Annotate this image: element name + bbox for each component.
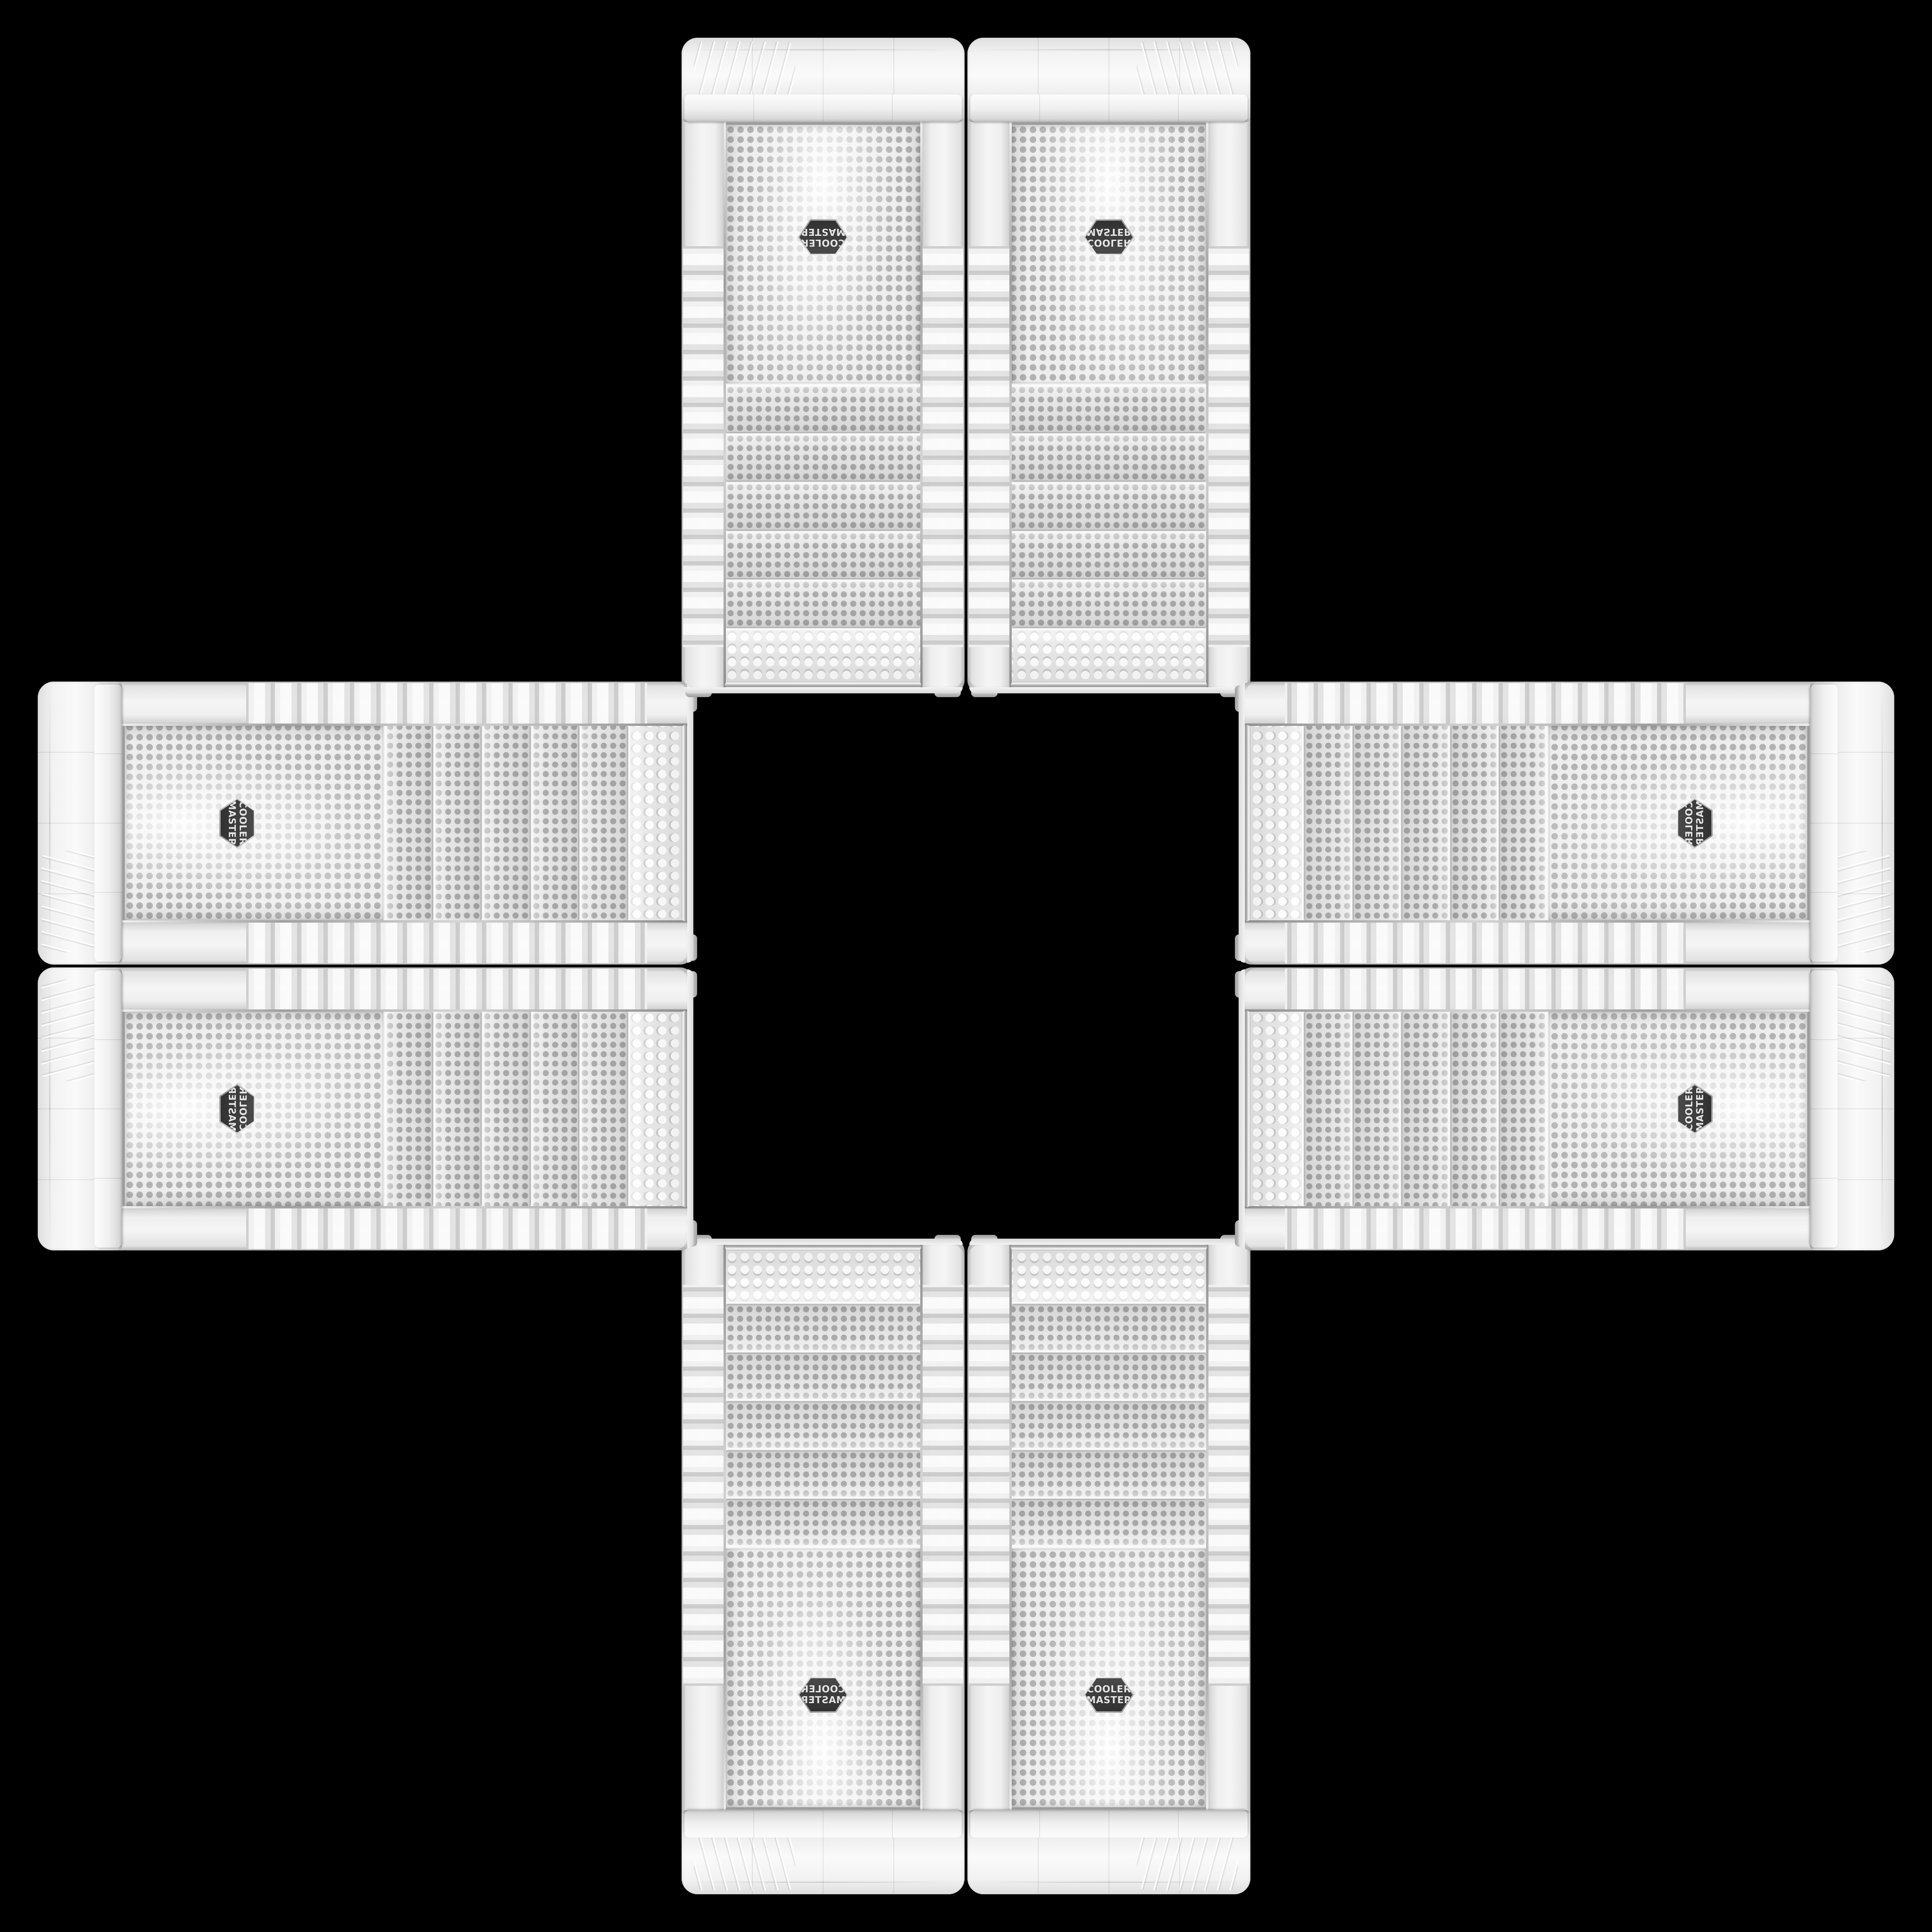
cooler-master-badge: COOLER MASTER xyxy=(798,1677,848,1713)
side-rail-ribs xyxy=(1285,683,1686,724)
cap-front-ledge xyxy=(684,94,962,122)
side-rail-chrome-edge xyxy=(724,1244,726,1823)
side-rail-ribs xyxy=(969,246,1010,647)
side-rail-chrome-edge xyxy=(1244,920,1823,923)
side-rail-right xyxy=(1244,682,1823,726)
badge-text-line2: MASTER xyxy=(1695,800,1706,846)
drive-bay-cover xyxy=(726,434,920,481)
case-top-right: COOLER MASTER xyxy=(967,38,1250,693)
case-left-bottom: COOLER MASTER xyxy=(38,967,693,1250)
base-bar xyxy=(1239,683,1245,963)
cooler-master-badge: COOLER MASTER xyxy=(798,219,848,255)
side-rail-right xyxy=(109,682,688,726)
top-bezel-cap xyxy=(682,1810,965,1894)
drive-bay-cover xyxy=(1012,483,1206,529)
drive-bay-cover xyxy=(1402,1012,1449,1206)
cap-front-ledge xyxy=(970,94,1248,122)
drive-bay-cover xyxy=(1012,532,1206,578)
side-rail-ribs xyxy=(922,246,963,647)
cooler-master-badge: COOLER MASTER xyxy=(219,1084,255,1134)
drive-bay-cover xyxy=(1012,434,1206,481)
side-rail-right xyxy=(1244,1206,1823,1250)
badge-text-line1: COOLER xyxy=(1087,1684,1131,1695)
drive-bay-cover xyxy=(385,1012,432,1206)
drive-bay-cover xyxy=(1012,580,1206,627)
side-rail-left xyxy=(682,1244,726,1823)
drive-bay-cover xyxy=(726,1451,920,1498)
side-rail-chrome-edge xyxy=(109,724,688,726)
badge-text-line2: MASTER xyxy=(1086,226,1132,237)
cap-front-ledge xyxy=(94,684,122,962)
drive-bay-cover xyxy=(1012,385,1206,432)
badge-text-line1: COOLER xyxy=(237,1087,248,1131)
cooler-master-badge: COOLER MASTER xyxy=(1677,1084,1713,1134)
side-rail-ribs xyxy=(922,1285,963,1686)
case-left-top: COOLER MASTER xyxy=(38,682,693,965)
cap-front-ledge xyxy=(1810,970,1838,1248)
base-bar xyxy=(687,969,693,1249)
top-bezel-cap xyxy=(967,38,1250,122)
drive-bay-cover xyxy=(434,726,481,920)
side-rail-right xyxy=(967,109,1012,688)
side-rail-chrome-edge xyxy=(1244,724,1823,726)
drive-bay-grid xyxy=(385,726,627,920)
cap-front-ledge xyxy=(684,1810,962,1838)
drive-bay-cover xyxy=(726,580,920,627)
drive-bay-cover xyxy=(532,726,578,920)
case-right-top: COOLER MASTER xyxy=(1239,682,1894,965)
side-rail-chrome-edge xyxy=(1244,1009,1823,1012)
top-bezel-cap xyxy=(682,38,965,122)
drive-bay-cover xyxy=(580,1012,627,1206)
badge-text-line2: MASTER xyxy=(1086,1695,1132,1706)
drive-bay-cover xyxy=(726,385,920,432)
chrome-trim-bottom xyxy=(725,683,921,687)
drive-bay-cover xyxy=(1305,1012,1352,1206)
drive-bay-cover xyxy=(385,726,432,920)
bottom-intake-mesh xyxy=(1250,726,1303,920)
cap-ledge-seams xyxy=(94,970,122,1248)
badge-text-line1: COOLER xyxy=(801,1684,845,1695)
side-rail-ribs xyxy=(1285,922,1686,963)
chrome-trim-bottom xyxy=(683,725,687,921)
case-top-left: COOLER MASTER xyxy=(682,38,965,693)
side-rail-chrome-edge xyxy=(1244,1206,1823,1208)
side-rail-left xyxy=(682,109,726,688)
bottom-intake-mesh xyxy=(629,1012,682,1206)
drive-bay-cover xyxy=(532,1012,578,1206)
drive-bay-cover xyxy=(580,726,627,920)
chrome-trim-bottom xyxy=(725,1245,921,1249)
pc-case: COOLER MASTER xyxy=(967,1239,1250,1894)
case-bottom-right: COOLER MASTER xyxy=(967,1239,1250,1894)
side-rail-ribs xyxy=(1207,1285,1249,1686)
top-bezel-cap xyxy=(1810,682,1894,965)
drive-bay-cover xyxy=(726,1305,920,1352)
pc-case: COOLER MASTER xyxy=(1239,682,1894,965)
side-rail-chrome-edge xyxy=(109,1206,688,1208)
cap-ledge-seams xyxy=(1810,970,1838,1248)
pc-case: COOLER MASTER xyxy=(38,682,693,965)
badge-text-line1: COOLER xyxy=(1087,237,1131,248)
badge-text-line1: COOLER xyxy=(237,801,248,845)
chrome-trim-bottom xyxy=(1011,1245,1207,1249)
drive-bay-grid xyxy=(726,385,920,627)
base-bar xyxy=(683,1239,963,1245)
cap-front-ledge xyxy=(1810,684,1838,962)
cooler-master-badge: COOLER MASTER xyxy=(1677,798,1713,848)
pc-case: COOLER MASTER xyxy=(682,1239,965,1894)
side-rail-ribs xyxy=(1285,969,1686,1010)
side-rail-ribs xyxy=(1207,246,1249,647)
side-rail-left xyxy=(1244,920,1823,965)
cooler-master-badge: COOLER MASTER xyxy=(1084,1677,1134,1713)
chrome-trim-bottom xyxy=(1011,683,1207,687)
drive-bay-cover xyxy=(1451,726,1498,920)
base-bar xyxy=(683,687,963,693)
drive-bay-cover xyxy=(1012,1500,1206,1547)
base-bar xyxy=(1239,969,1245,1249)
badge-text-line1: COOLER xyxy=(1684,1087,1695,1131)
case-bottom-left: COOLER MASTER xyxy=(682,1239,965,1894)
pc-case: COOLER MASTER xyxy=(38,967,693,1250)
side-rail-chrome-edge xyxy=(109,920,688,923)
bottom-intake-mesh xyxy=(1012,629,1206,682)
drive-bay-cover xyxy=(726,532,920,578)
bottom-intake-mesh xyxy=(629,726,682,920)
drive-bay-cover xyxy=(1451,1012,1498,1206)
cap-ledge-seams xyxy=(970,1810,1248,1838)
drive-bay-cover xyxy=(726,1402,920,1449)
badge-text-line2: MASTER xyxy=(226,800,237,846)
side-rail-right xyxy=(920,109,965,688)
drive-bay-cover xyxy=(1012,1451,1206,1498)
scene-stage: COOLER MASTER xyxy=(0,0,1932,1932)
side-rail-ribs xyxy=(246,969,647,1010)
cooler-master-badge: COOLER MASTER xyxy=(219,798,255,848)
pc-case: COOLER MASTER xyxy=(682,38,965,693)
pc-case: COOLER MASTER xyxy=(967,38,1250,693)
side-rail-ribs xyxy=(969,1285,1010,1686)
cap-ledge-seams xyxy=(684,1810,962,1838)
badge-text-line2: MASTER xyxy=(800,1695,846,1706)
side-rail-left xyxy=(1244,967,1823,1012)
cap-ledge-seams xyxy=(970,94,1248,122)
side-rail-chrome-edge xyxy=(109,1009,688,1012)
side-rail-chrome-edge xyxy=(920,109,923,688)
pc-case: COOLER MASTER xyxy=(1239,967,1894,1250)
drive-bay-grid xyxy=(1012,1305,1206,1547)
drive-bay-cover xyxy=(1012,1354,1206,1400)
base-bar xyxy=(969,687,1249,693)
top-bezel-cap xyxy=(38,682,122,965)
drive-bay-cover xyxy=(726,1354,920,1400)
side-rail-right xyxy=(920,1244,965,1823)
side-rail-chrome-edge xyxy=(724,109,726,688)
drive-bay-cover xyxy=(1402,726,1449,920)
side-rail-ribs xyxy=(246,1207,647,1249)
drive-bay-cover xyxy=(1354,726,1400,920)
bottom-intake-mesh xyxy=(726,1250,920,1303)
drive-bay-cover xyxy=(483,1012,529,1206)
side-rail-chrome-edge xyxy=(1206,1244,1208,1823)
drive-bay-grid xyxy=(726,1305,920,1547)
side-rail-right xyxy=(967,1244,1012,1823)
cap-ledge-seams xyxy=(684,94,962,122)
side-rail-ribs xyxy=(1285,1207,1686,1249)
drive-bay-cover xyxy=(483,726,529,920)
drive-bay-cover xyxy=(726,1500,920,1547)
bottom-intake-mesh xyxy=(1250,1012,1303,1206)
side-rail-ribs xyxy=(683,246,724,647)
badge-text-line1: COOLER xyxy=(1684,801,1695,845)
cooler-master-badge: COOLER MASTER xyxy=(1084,219,1134,255)
drive-bay-grid xyxy=(385,1012,627,1206)
bottom-intake-mesh xyxy=(726,629,920,682)
top-bezel-cap xyxy=(967,1810,1250,1894)
side-rail-left xyxy=(1206,1244,1250,1823)
bottom-intake-mesh xyxy=(1012,1250,1206,1303)
drive-bay-cover xyxy=(1012,1402,1206,1449)
side-rail-chrome-edge xyxy=(920,1244,923,1823)
side-rail-ribs xyxy=(246,683,647,724)
drive-bay-grid xyxy=(1305,726,1547,920)
drive-bay-cover xyxy=(1305,726,1352,920)
top-bezel-cap xyxy=(1810,967,1894,1250)
badge-text-line2: MASTER xyxy=(1695,1086,1706,1132)
badge-text-line2: MASTER xyxy=(226,1086,237,1132)
side-rail-chrome-edge xyxy=(1009,109,1012,688)
side-rail-ribs xyxy=(683,1285,724,1686)
chrome-trim-bottom xyxy=(1245,725,1249,921)
side-rail-ribs xyxy=(246,922,647,963)
badge-text-line1: COOLER xyxy=(801,237,845,248)
side-rail-left xyxy=(1206,109,1250,688)
drive-bay-grid xyxy=(1305,1012,1547,1206)
base-bar xyxy=(687,683,693,963)
case-right-bottom: COOLER MASTER xyxy=(1239,967,1894,1250)
drive-bay-cover xyxy=(1012,1305,1206,1352)
top-bezel-cap xyxy=(38,967,122,1250)
drive-bay-cover xyxy=(726,483,920,529)
cap-front-ledge xyxy=(94,970,122,1248)
cap-ledge-seams xyxy=(1810,684,1838,962)
drive-bay-cover xyxy=(1354,1012,1400,1206)
side-rail-right xyxy=(109,1206,688,1250)
chrome-trim-bottom xyxy=(683,1011,687,1207)
chrome-trim-bottom xyxy=(1245,1011,1249,1207)
drive-bay-cover xyxy=(1500,1012,1547,1206)
base-bar xyxy=(969,1239,1249,1245)
side-rail-chrome-edge xyxy=(1009,1244,1012,1823)
side-rail-chrome-edge xyxy=(1206,109,1208,688)
drive-bay-cover xyxy=(434,1012,481,1206)
cap-front-ledge xyxy=(970,1810,1248,1838)
cap-ledge-seams xyxy=(94,684,122,962)
badge-text-line2: MASTER xyxy=(800,226,846,237)
side-rail-left xyxy=(109,920,688,965)
drive-bay-grid xyxy=(1012,385,1206,627)
side-rail-left xyxy=(109,967,688,1012)
drive-bay-cover xyxy=(1500,726,1547,920)
